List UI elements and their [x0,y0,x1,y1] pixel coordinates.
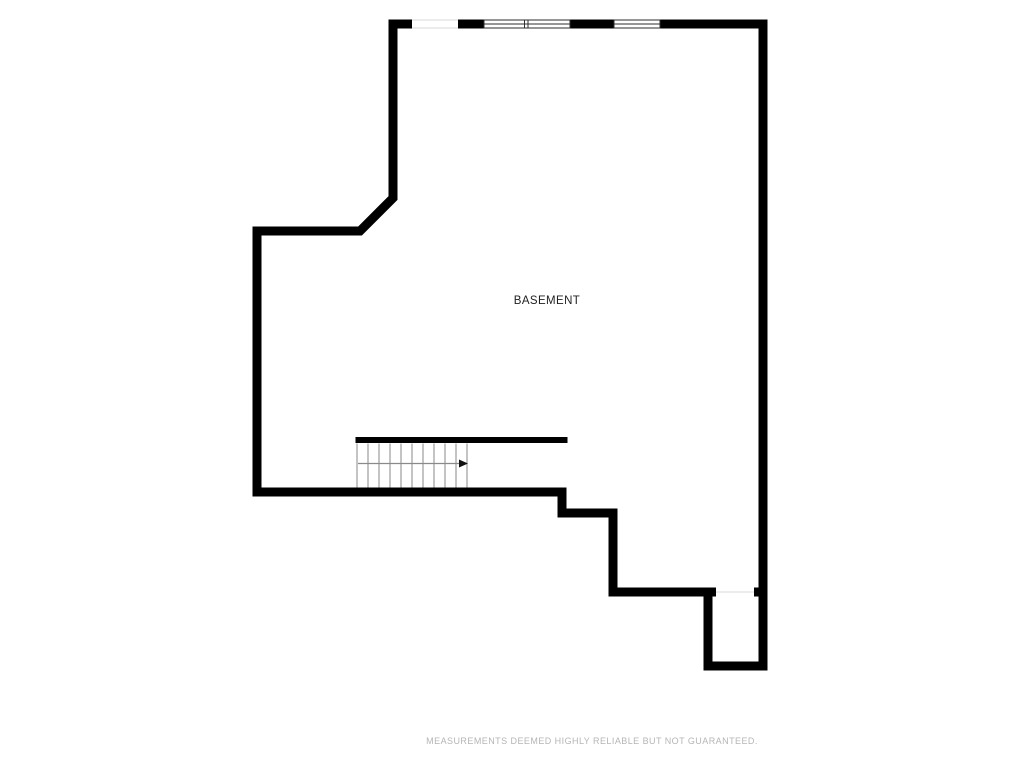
staircase [356,440,568,488]
basement-floorplan-drawing: BASEMENT MEASUREMENTS DEEMED HIGHLY RELI… [0,0,1024,768]
room-label: BASEMENT [514,295,580,307]
top-wall-single-window [614,20,660,28]
floorplan-page: BASEMENT MEASUREMENTS DEEMED HIGHLY RELI… [0,0,1024,768]
top-wall-double-window [484,20,570,28]
disclaimer-text: MEASUREMENTS DEEMED HIGHLY RELIABLE BUT … [426,736,758,746]
exterior-wall-outline [257,24,763,666]
walls [257,24,763,666]
stair-treads [357,444,467,488]
bottom-right-opening [716,587,754,598]
top-wall-opening [412,19,458,29]
